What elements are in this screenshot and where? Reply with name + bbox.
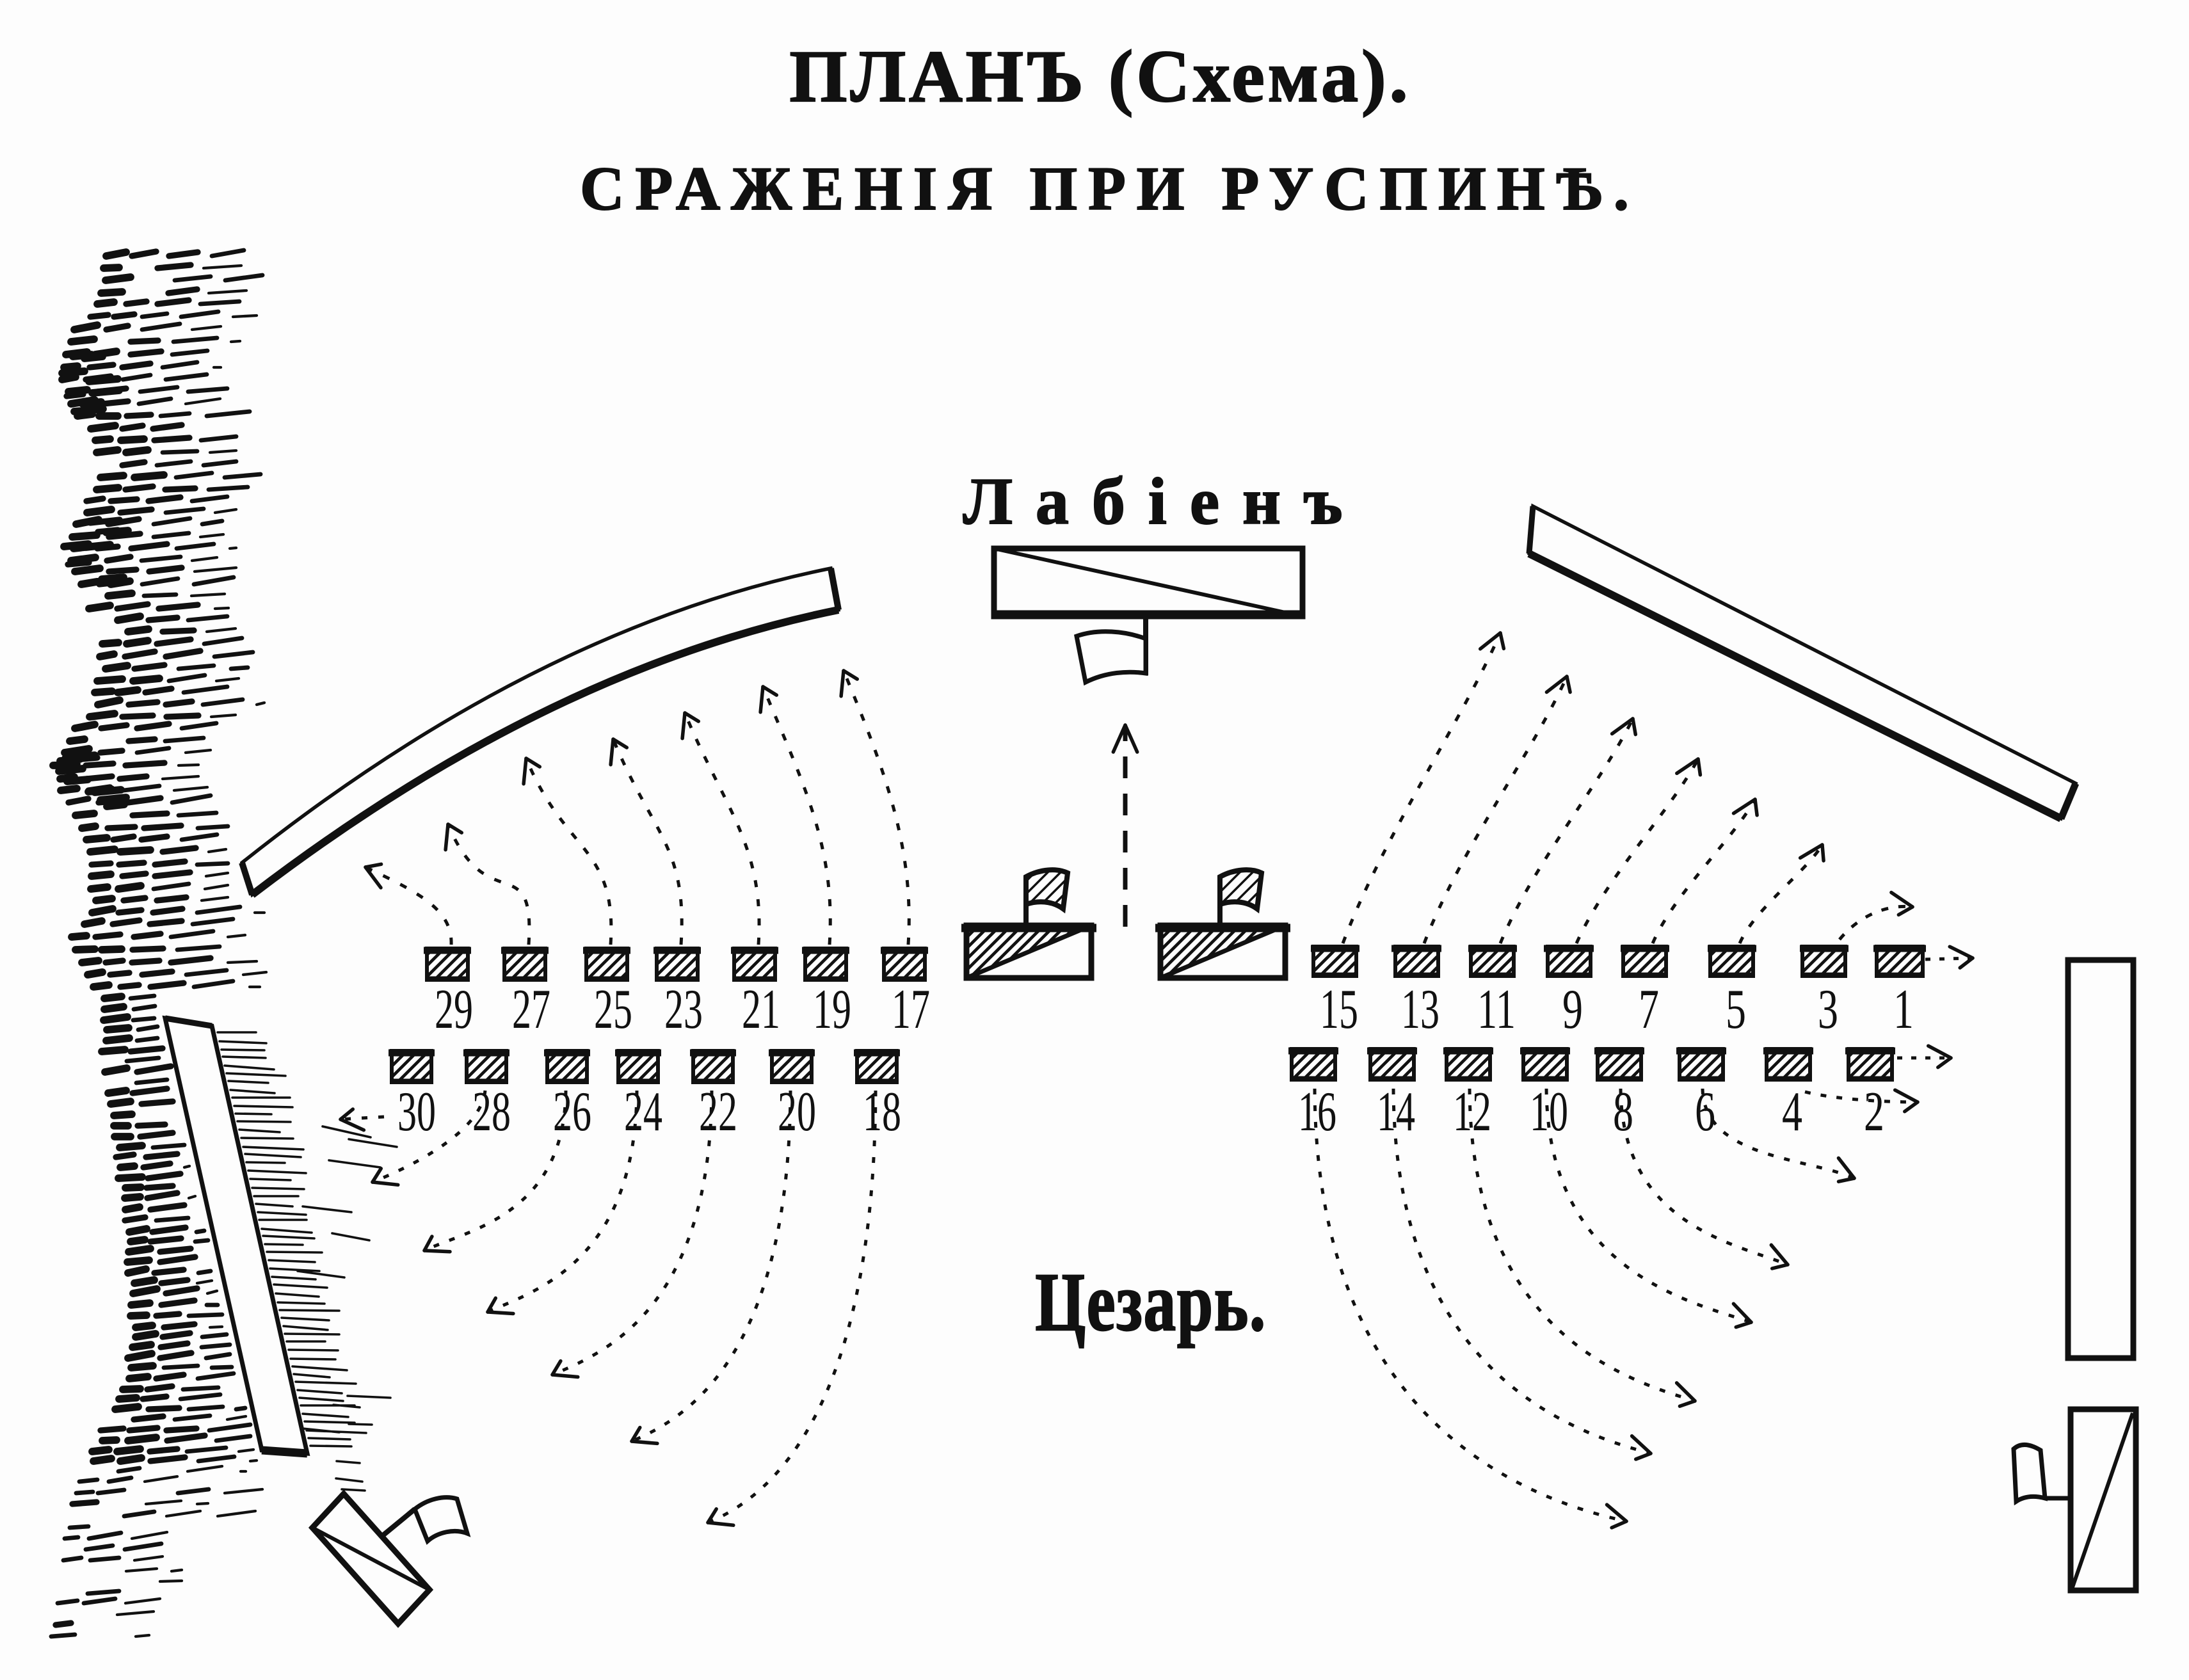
svg-text:26: 26 xyxy=(553,1081,591,1143)
svg-text:17: 17 xyxy=(892,979,930,1041)
svg-text:28: 28 xyxy=(472,1081,511,1143)
svg-text:21: 21 xyxy=(742,979,780,1041)
svg-text:23: 23 xyxy=(664,979,703,1041)
svg-text:22: 22 xyxy=(699,1081,737,1143)
svg-text:СРАЖЕНІЯ ПРИ РУСПИНѢ.: СРАЖЕНІЯ ПРИ РУСПИНѢ. xyxy=(580,154,1640,223)
svg-text:14: 14 xyxy=(1377,1081,1415,1143)
svg-text:13: 13 xyxy=(1401,979,1439,1041)
svg-text:6: 6 xyxy=(1695,1081,1715,1143)
svg-text:30: 30 xyxy=(397,1081,436,1143)
svg-text:2: 2 xyxy=(1864,1081,1884,1143)
svg-text:ПЛАНЪ (Схема).: ПЛАНЪ (Схема). xyxy=(789,36,1411,118)
svg-text:19: 19 xyxy=(813,979,851,1041)
svg-text:18: 18 xyxy=(863,1081,901,1143)
svg-text:12: 12 xyxy=(1453,1081,1491,1143)
svg-text:Лабіенъ: Лабіенъ xyxy=(963,465,1365,538)
svg-text:3: 3 xyxy=(1818,979,1838,1041)
svg-text:11: 11 xyxy=(1477,979,1516,1041)
svg-text:27: 27 xyxy=(512,979,550,1041)
svg-text:9: 9 xyxy=(1562,979,1583,1041)
svg-text:4: 4 xyxy=(1782,1081,1802,1143)
svg-text:1: 1 xyxy=(1893,979,1914,1041)
svg-text:10: 10 xyxy=(1530,1081,1568,1143)
svg-text:15: 15 xyxy=(1320,979,1358,1041)
svg-text:24: 24 xyxy=(624,1081,662,1143)
svg-text:Цезарь.: Цезарь. xyxy=(1035,1256,1267,1348)
svg-text:8: 8 xyxy=(1613,1081,1633,1143)
svg-text:7: 7 xyxy=(1639,979,1659,1041)
svg-text:16: 16 xyxy=(1298,1081,1336,1143)
svg-text:29: 29 xyxy=(435,979,473,1041)
svg-text:20: 20 xyxy=(778,1081,816,1143)
svg-text:25: 25 xyxy=(594,979,632,1041)
svg-text:5: 5 xyxy=(1726,979,1746,1041)
